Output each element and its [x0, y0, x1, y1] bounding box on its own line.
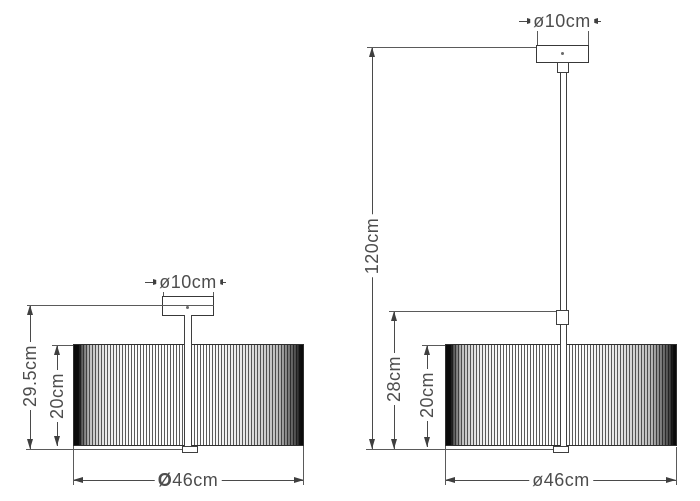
right-rod-joint: [556, 310, 569, 325]
right-diameter-ext-left: [445, 446, 446, 485]
right-body-height-label: 28cm: [384, 353, 404, 405]
left-bottom-finial: [182, 446, 198, 453]
right-shade-height-label: 20cm: [417, 369, 437, 421]
right-shade-top-ext-line: [422, 345, 445, 346]
right-diameter-ext-right: [676, 447, 677, 485]
left-diameter-ext-left: [73, 446, 74, 485]
left-shade-height-arrow-top: [54, 345, 60, 355]
right-body-height-arrow-top: [391, 311, 397, 321]
left-overall-height-label: 29.5cm: [20, 342, 40, 410]
left-diameter-ext-right: [303, 446, 304, 485]
right-diameter-label: ø46cm: [529, 470, 593, 490]
right-diameter-arrow-left: [445, 477, 455, 483]
right-shade-height-arrow-bottom: [424, 437, 430, 447]
left-canopy-diameter-label: ø10cm: [156, 272, 220, 292]
right-rod: [560, 72, 567, 446]
right-canopy-screw-dot: [561, 52, 564, 55]
left-diameter-value: 46cm: [172, 470, 218, 490]
right-diameter-arrow-right: [666, 477, 676, 483]
left-height-dim-arrow-top: [27, 305, 33, 315]
left-diameter-symbol: Ø: [158, 470, 173, 490]
left-stem: [184, 315, 192, 446]
right-shade-height-arrow-top: [424, 345, 430, 355]
left-diameter-arrow-left: [73, 477, 83, 483]
right-bottom-ext-line: [366, 449, 553, 450]
right-joint-ext-line: [389, 311, 556, 312]
right-suspension-arrow-top: [369, 47, 375, 57]
lamp-dimension-drawing: ø10cm 29.5cm 20cm Ø46cm ø10cm: [0, 0, 700, 501]
right-body-height-arrow-bottom: [391, 439, 397, 449]
left-height-dim-arrow-bottom: [27, 439, 33, 449]
left-shade-height-arrow-bottom: [54, 436, 60, 446]
left-canopy-screw-dot: [186, 306, 189, 309]
right-canopy-diameter-label: ø10cm: [530, 11, 594, 31]
left-bottom-ext-line: [26, 449, 198, 450]
right-suspension-length-label: 120cm: [362, 215, 382, 278]
left-shade-top-ext-line: [52, 345, 73, 346]
right-suspension-arrow-bottom: [369, 439, 375, 449]
right-ceiling-ext-line: [367, 47, 537, 48]
left-diameter-label: Ø46cm: [155, 470, 222, 490]
right-canopy-connector: [557, 62, 569, 73]
right-bottom-finial: [553, 446, 569, 453]
left-shade-height-label: 20cm: [47, 370, 67, 422]
